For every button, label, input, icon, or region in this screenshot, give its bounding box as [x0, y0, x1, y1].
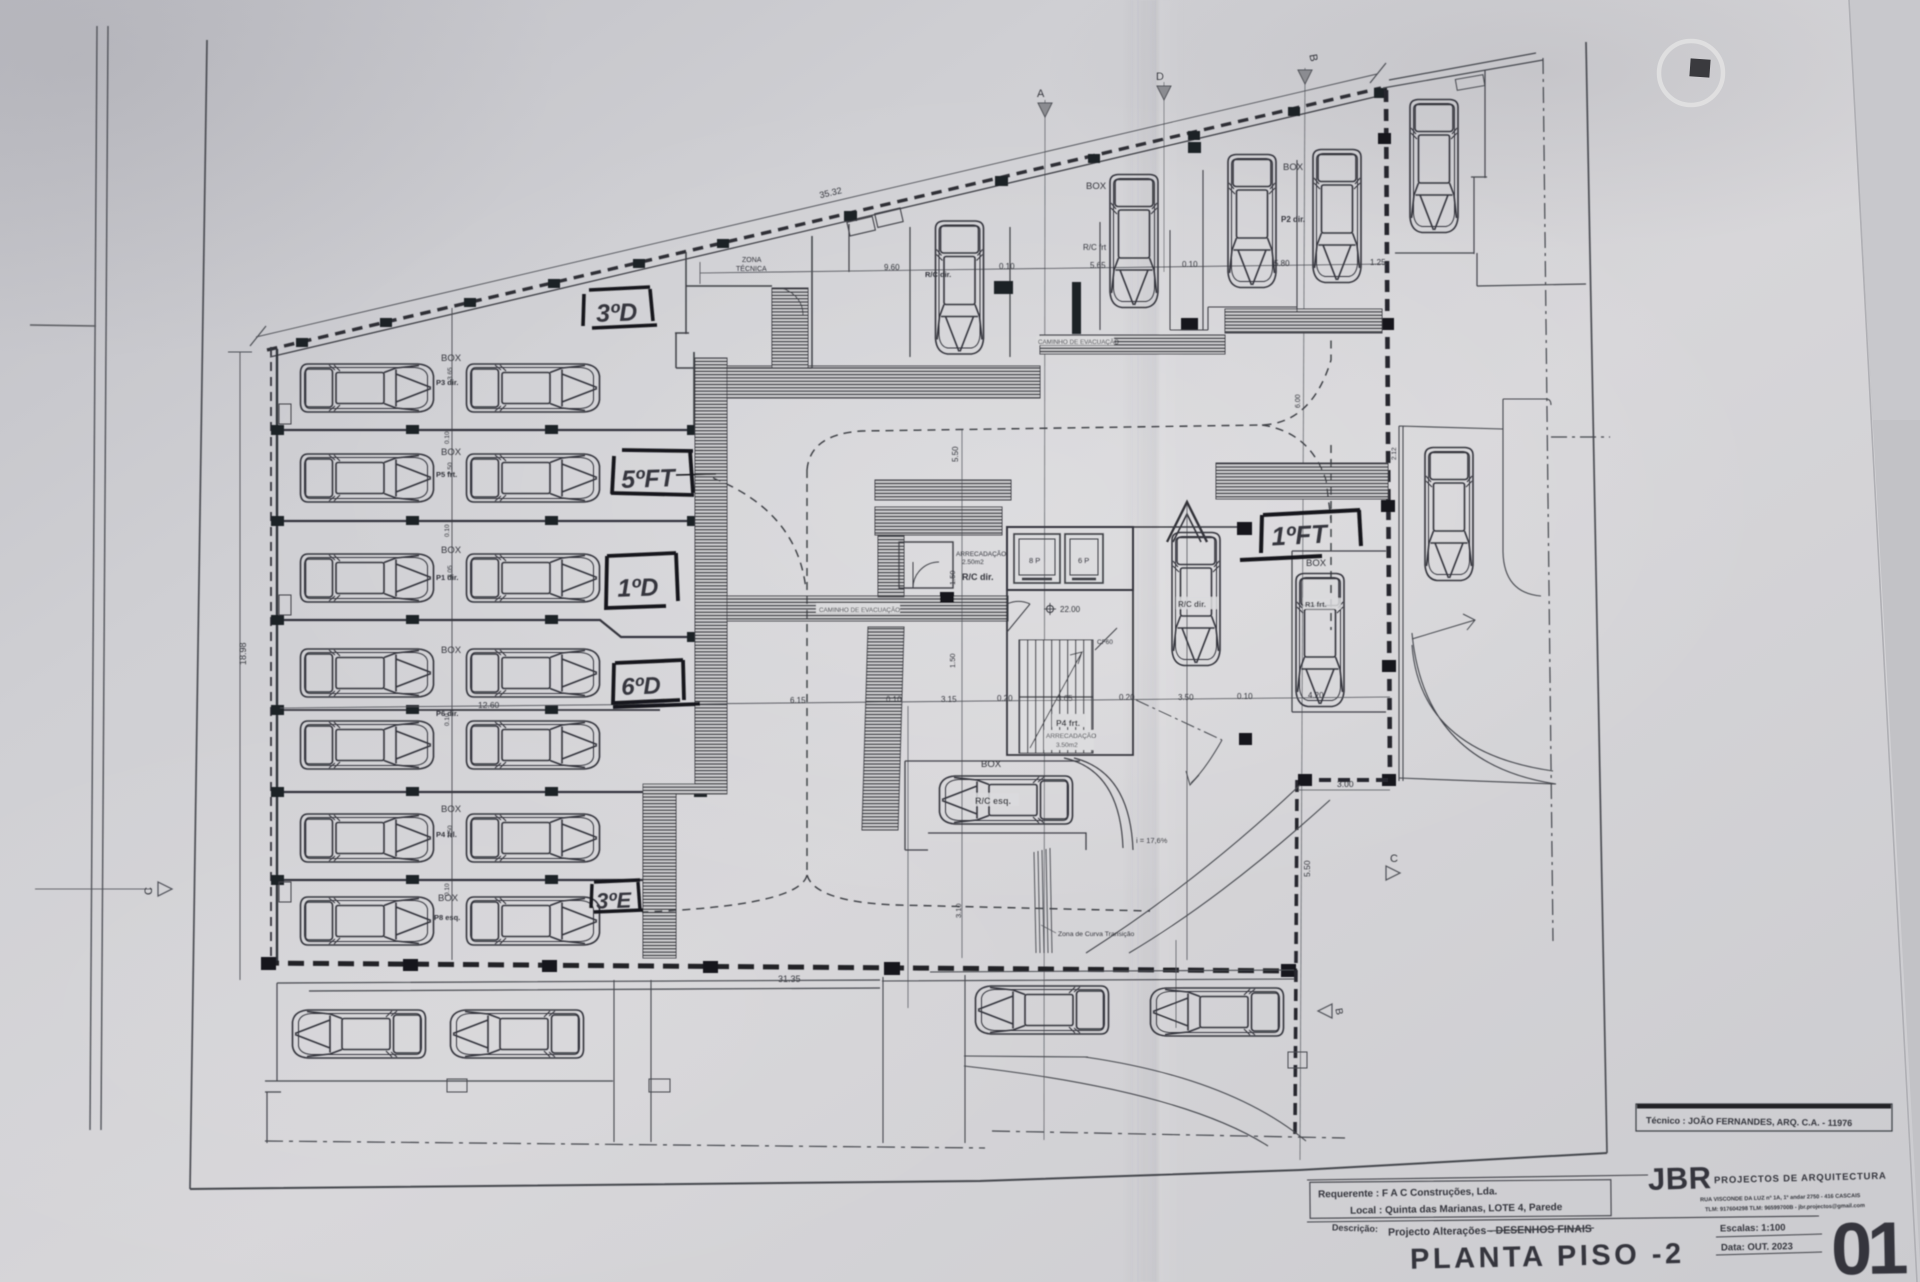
svg-text:ZONA: ZONA	[742, 257, 762, 264]
svg-text:1.25: 1.25	[1370, 258, 1386, 267]
svg-text:R/C frt: R/C frt	[1083, 243, 1107, 252]
svg-text:Descrição:: Descrição:	[1332, 1222, 1378, 1234]
svg-text:D: D	[1156, 71, 1164, 83]
svg-text:C: C	[143, 887, 155, 895]
svg-text:BOX: BOX	[441, 447, 462, 458]
svg-text:9.60: 9.60	[884, 263, 900, 272]
svg-text:3.50m2: 3.50m2	[1056, 742, 1078, 749]
svg-text:3.05: 3.05	[447, 565, 454, 578]
svg-text:18.98: 18.98	[238, 642, 248, 665]
svg-text:3.65: 3.65	[447, 367, 454, 380]
svg-text:0.10: 0.10	[1237, 692, 1253, 701]
svg-text:5.50: 5.50	[951, 446, 960, 462]
svg-text:ARRECADAÇÃO: ARRECADAÇÃO	[1046, 731, 1096, 740]
svg-text:BOX: BOX	[1086, 181, 1107, 192]
svg-text:JBR: JBR	[1648, 1160, 1712, 1197]
svg-text:2.12: 2.12	[1391, 447, 1398, 460]
svg-text:C: C	[1390, 853, 1398, 865]
svg-text:3ºE: 3ºE	[596, 887, 633, 913]
svg-text:0.10: 0.10	[444, 713, 451, 726]
svg-text:2.50: 2.50	[447, 825, 454, 838]
svg-text:BOX: BOX	[441, 353, 462, 364]
svg-text:1.50: 1.50	[948, 570, 957, 585]
svg-text:R/C dir.: R/C dir.	[1178, 600, 1206, 609]
svg-text:1ºD: 1ºD	[617, 573, 659, 602]
svg-text:BOX: BOX	[981, 759, 1002, 770]
svg-text:0.10: 0.10	[886, 695, 902, 704]
svg-text:8 P: 8 P	[1029, 556, 1040, 565]
svg-text:0.10: 0.10	[444, 883, 451, 896]
svg-text:3.10: 3.10	[954, 903, 963, 918]
svg-text:P2 dir.: P2 dir.	[1281, 215, 1305, 224]
svg-text:BOX: BOX	[441, 545, 462, 556]
svg-text:TÉCNICA: TÉCNICA	[736, 264, 767, 273]
svg-text:6ºD: 6ºD	[621, 672, 661, 700]
svg-text:3ºD: 3ºD	[596, 298, 638, 327]
svg-text:BOX: BOX	[441, 645, 462, 656]
svg-text:A: A	[1037, 88, 1045, 100]
svg-text:BOX: BOX	[441, 804, 462, 815]
svg-text:5.50: 5.50	[1302, 860, 1312, 877]
svg-text:2.50m2: 2.50m2	[962, 559, 984, 566]
svg-text:0.10: 0.10	[999, 262, 1015, 271]
svg-text:5ºFT: 5ºFT	[621, 464, 678, 494]
svg-text:2.50: 2.50	[447, 462, 454, 475]
svg-text:6.00: 6.00	[1295, 394, 1302, 408]
svg-text:22.00: 22.00	[1060, 605, 1081, 614]
svg-text:01: 01	[1830, 1206, 1908, 1282]
svg-text:5.65: 5.65	[1090, 261, 1106, 270]
svg-text:1.50: 1.50	[948, 653, 957, 668]
svg-text:P4 frt.: P4 frt.	[1056, 718, 1080, 728]
svg-text:R/C esq.: R/C esq.	[975, 796, 1011, 806]
svg-text:4.20: 4.20	[1308, 691, 1324, 700]
svg-text:Zona de Curva Transição: Zona de Curva Transição	[1058, 931, 1135, 938]
svg-text:1ºFT: 1ºFT	[1271, 519, 1330, 552]
svg-text:6.15: 6.15	[790, 696, 806, 705]
svg-text:PLANTA PISO -2: PLANTA PISO -2	[1410, 1238, 1685, 1276]
svg-text:R1 frt.: R1 frt.	[1305, 600, 1327, 609]
svg-text:0.20: 0.20	[997, 694, 1013, 703]
svg-text:Escalas: 1:100: Escalas: 1:100	[1720, 1222, 1786, 1234]
svg-text:6 P: 6 P	[1078, 556, 1089, 565]
svg-text:ARRECADAÇÃO: ARRECADAÇÃO	[956, 549, 1006, 558]
svg-text:BOX: BOX	[1283, 162, 1304, 173]
svg-text:3.50: 3.50	[1178, 693, 1194, 702]
svg-text:P8 esq.: P8 esq.	[434, 913, 460, 922]
svg-text:31.35: 31.35	[778, 974, 801, 984]
svg-text:0.20: 0.20	[1119, 693, 1135, 702]
svg-text:i = 17,6%: i = 17,6%	[1136, 836, 1168, 845]
svg-text:3.00: 3.00	[1337, 779, 1354, 789]
svg-text:R/C dir.: R/C dir.	[925, 270, 951, 279]
svg-text:3.15: 3.15	[941, 695, 957, 704]
svg-text:Data: OUT. 2023: Data: OUT. 2023	[1721, 1241, 1793, 1253]
svg-text:BOX: BOX	[1306, 558, 1327, 569]
svg-text:0.10: 0.10	[444, 524, 451, 537]
svg-text:R/C dir.: R/C dir.	[962, 572, 994, 582]
svg-text:0.10: 0.10	[1182, 260, 1198, 269]
svg-text:CAMINHO DE EVACUAÇÃO: CAMINHO DE EVACUAÇÃO	[1038, 337, 1119, 346]
svg-text:0.10: 0.10	[444, 431, 451, 444]
svg-text:CAMINHO DE EVACUAÇÃO: CAMINHO DE EVACUAÇÃO	[819, 605, 900, 614]
svg-text:3.65: 3.65	[1057, 694, 1073, 703]
svg-text:12.60: 12.60	[478, 700, 500, 710]
